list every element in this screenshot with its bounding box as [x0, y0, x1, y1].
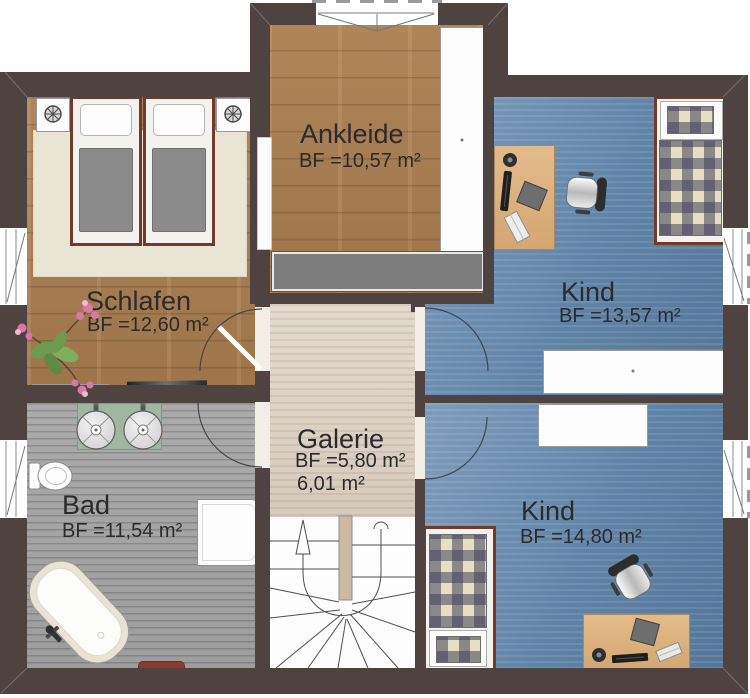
wall-top-left-wing	[3, 72, 270, 97]
wardrobe-kind-bottom	[538, 404, 648, 447]
pillow-right	[153, 104, 205, 136]
room-name-schlafen: Schlafen	[86, 288, 191, 315]
dresser-ankleide	[272, 252, 484, 291]
wardrobe-kind-top	[543, 350, 725, 394]
room-name-ankleide: Ankleide	[300, 121, 404, 148]
door-opening-bad	[255, 402, 270, 468]
window-bad	[0, 440, 27, 518]
room-area-kind-bottom: BF =14,80 m²	[520, 527, 642, 547]
room-name-galerie: Galerie	[297, 426, 384, 453]
plaid-blanket-kind-bottom	[429, 534, 487, 628]
window-kind-bottom	[723, 440, 748, 518]
wardrobe-ankleide	[440, 27, 485, 258]
plaid-pillow-kind-top	[667, 106, 714, 134]
window-dormer	[316, 3, 438, 25]
room-name-bad: Bad	[62, 492, 110, 519]
room-area-schlafen: BF =12,60 m²	[87, 315, 209, 335]
wall-top-right-wing	[483, 75, 747, 97]
nightstand-left	[36, 98, 70, 132]
duvet-right	[152, 148, 206, 232]
wall-schlafen-bad	[27, 385, 270, 403]
wall-ankleide-kind	[483, 97, 494, 304]
sliding-door-ankleide	[257, 137, 272, 250]
wall-exterior-bottom	[0, 668, 748, 694]
room-name-kind-top: Kind	[561, 279, 615, 306]
pillow-left	[80, 104, 132, 136]
door-opening-schlafen	[255, 307, 270, 371]
wall-exterior-left	[0, 72, 27, 672]
plaid-blanket-kind-top	[659, 140, 722, 236]
nightstand-right	[216, 98, 254, 132]
shower-cabinet-inner	[202, 504, 256, 561]
wall-kind-divider	[425, 395, 748, 403]
door-opening-kind-bottom	[415, 417, 425, 479]
window-kind-top	[723, 228, 748, 305]
wall-dormer-top-left	[250, 3, 318, 25]
duvet-left	[79, 148, 133, 232]
wall-exterior-right	[723, 75, 748, 672]
staircase-area	[270, 516, 415, 668]
desk-kind-top	[494, 145, 555, 250]
room-area-galerie: BF =5,80 m²	[295, 451, 406, 471]
room-name-kind-bottom: Kind	[521, 498, 575, 525]
wall-ankleide-galerie	[250, 293, 494, 304]
vanity-counter	[77, 403, 162, 450]
room-area-kind-top: BF =13,57 m²	[559, 306, 681, 326]
room-area-bad: BF =11,54 m²	[62, 521, 182, 541]
room-area2-galerie: 6,01 m²	[297, 474, 365, 494]
wall-dormer-top-right	[436, 3, 508, 25]
door-opening-kind-top	[415, 307, 425, 371]
window-schlafen	[0, 228, 27, 305]
shower-cabinet	[197, 499, 261, 566]
plaid-pillow-kind-bottom	[436, 636, 481, 663]
roof-edge-dashed-line	[312, 0, 442, 3]
room-area-ankleide: BF =10,57 m²	[299, 151, 421, 171]
desk-kind-bottom	[583, 614, 690, 670]
floor-plan: Schlafen BF =12,60 m² Ankleide BF =10,57…	[0, 0, 750, 698]
